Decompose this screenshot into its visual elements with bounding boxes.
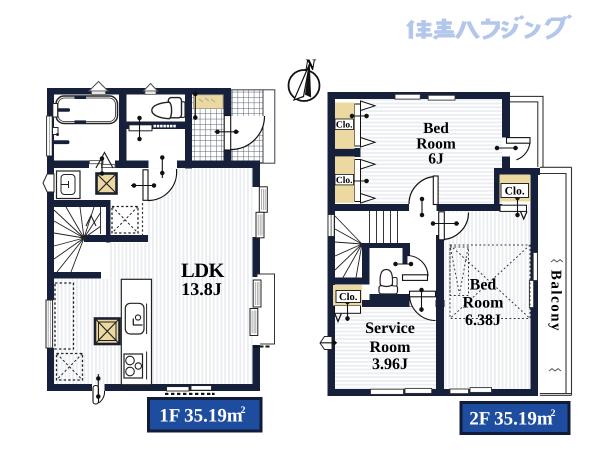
- svg-text:Clo.: Clo.: [339, 292, 358, 303]
- svg-text:Bed: Bed: [470, 277, 497, 294]
- svg-text:Clo.: Clo.: [336, 176, 353, 186]
- svg-text:Room: Room: [370, 339, 412, 356]
- svg-text:Room: Room: [463, 295, 505, 312]
- svg-text:2: 2: [241, 405, 246, 416]
- svg-text:Clo.: Clo.: [336, 121, 353, 131]
- svg-text:6J: 6J: [428, 151, 444, 168]
- svg-text:1F 35.19m: 1F 35.19m: [159, 406, 243, 427]
- svg-text:Service: Service: [365, 320, 415, 337]
- svg-text:2: 2: [551, 408, 556, 419]
- svg-text:Balcony: Balcony: [548, 270, 564, 332]
- svg-text:3.96J: 3.96J: [372, 356, 408, 373]
- svg-text:Clo.: Clo.: [505, 186, 525, 198]
- svg-text:6.38J: 6.38J: [465, 312, 501, 329]
- svg-text:N: N: [303, 57, 317, 74]
- svg-text:2F 35.19m: 2F 35.19m: [469, 409, 553, 430]
- svg-text:13.8J: 13.8J: [181, 279, 222, 299]
- svg-text:Bed: Bed: [423, 120, 449, 137]
